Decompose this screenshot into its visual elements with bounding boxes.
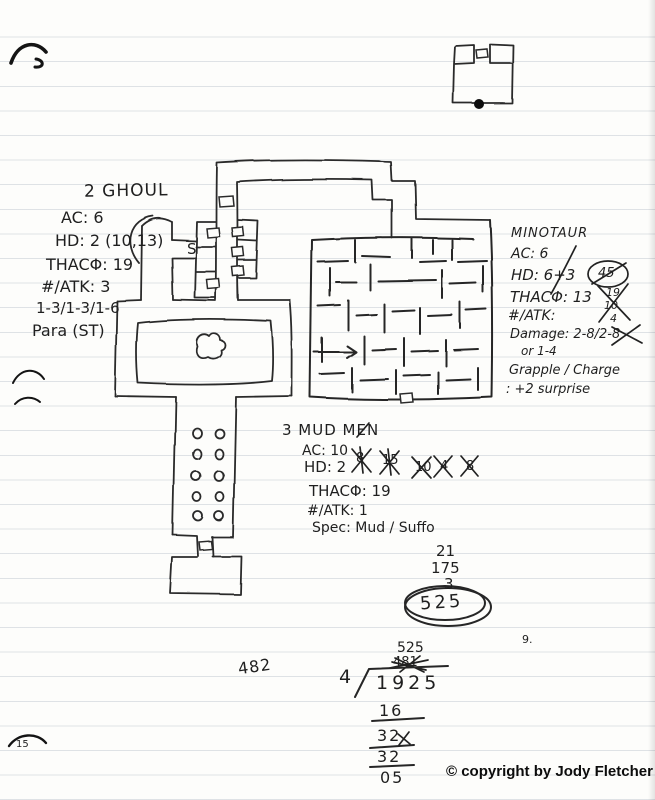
scanned-notebook-page: 2 GHOUL AC: 6 HD: 2 (10,13) THACΦ: 19 #/… bbox=[0, 0, 655, 800]
maze-walls bbox=[318, 239, 487, 394]
mudmen-hp-scratch: 4 bbox=[440, 460, 448, 473]
minotaur-damage: Damage: 2-8/2-8 bbox=[510, 328, 620, 341]
sum-addend: 3 bbox=[444, 577, 454, 592]
ghoul-attacks: #/ATK: 3 bbox=[41, 279, 110, 295]
mudmen-hd: HD: 2 bbox=[304, 460, 346, 475]
arrow-icon bbox=[314, 346, 356, 358]
division-dividend: 1925 bbox=[376, 674, 440, 693]
minotaur-hd: HD: 6+3 bbox=[511, 268, 575, 283]
ghoul-ac: AC: 6 bbox=[61, 210, 104, 226]
side-number: 482 bbox=[237, 657, 272, 678]
door-icon bbox=[476, 49, 488, 58]
minotaur-hp-scratch: 10 bbox=[604, 300, 618, 311]
pool-blob bbox=[196, 333, 225, 358]
mudmen-hp-scratch: 8 bbox=[356, 452, 364, 465]
ghoul-special: Para (ST) bbox=[32, 323, 105, 339]
dungeon-map-drawing bbox=[0, 0, 655, 800]
minotaur-hp-circled: 45 bbox=[598, 267, 615, 280]
map-dot-marker bbox=[474, 99, 484, 109]
door-icon bbox=[207, 228, 220, 238]
mudmen-title: 3 MUD MEN bbox=[282, 423, 379, 438]
door-icon bbox=[232, 247, 244, 257]
door-icon bbox=[400, 393, 413, 403]
minotaur-title: MINOTAUR bbox=[511, 227, 588, 240]
division-remainder: 05 bbox=[380, 770, 404, 786]
division-step: 32 bbox=[377, 749, 401, 765]
door-icon bbox=[232, 266, 244, 276]
scan-artifact-top-left bbox=[11, 45, 46, 67]
great-hall-room bbox=[115, 300, 292, 397]
door-icon bbox=[219, 196, 234, 207]
secret-door-marker: S bbox=[187, 242, 197, 257]
mudmen-hp-scratch: 15 bbox=[382, 454, 399, 467]
mudmen-special: Spec: Mud / Suffo bbox=[312, 521, 435, 535]
minotaur-attacks: #/ATK: bbox=[508, 309, 555, 323]
platform-outline bbox=[137, 319, 274, 384]
minotaur-thac0: THACΦ: 13 bbox=[510, 290, 592, 305]
maze-room bbox=[310, 220, 493, 403]
pillar-icons bbox=[192, 428, 225, 521]
mudmen-attacks: #/ATK: 1 bbox=[307, 504, 368, 518]
left-chamber bbox=[130, 216, 196, 300]
division-divisor: 4 bbox=[339, 668, 351, 687]
division-step: 16 bbox=[379, 703, 403, 719]
minotaur-hp-scratch: 4 bbox=[610, 313, 617, 324]
top-right-room bbox=[453, 44, 513, 109]
page-number: 15 bbox=[16, 740, 29, 750]
door-icon bbox=[207, 279, 220, 289]
division-step: 32 bbox=[377, 728, 401, 744]
cell-block bbox=[195, 164, 258, 300]
mudmen-ac: AC: 10 bbox=[302, 444, 348, 458]
mudmen-hp-scratch: 8 bbox=[466, 460, 474, 473]
ghoul-damage: 1-3/1-3/1-6 bbox=[36, 301, 120, 316]
division-scratch: 481 bbox=[393, 656, 418, 669]
sum-result: 525 bbox=[419, 593, 464, 614]
minotaur-damage-alt: or 1-4 bbox=[521, 345, 557, 357]
minotaur-ac: AC: 6 bbox=[511, 247, 548, 261]
stray-number: 9. bbox=[522, 634, 533, 645]
scan-artifact-mid-left bbox=[13, 371, 44, 404]
sum-addend: 21 bbox=[436, 544, 455, 559]
pillar-corridor bbox=[173, 397, 236, 556]
mudmen-hp-scratch: 10 bbox=[415, 461, 432, 474]
ghoul-hd: HD: 2 (10,13) bbox=[55, 233, 163, 249]
sum-addend: 175 bbox=[431, 561, 460, 576]
door-icon bbox=[232, 227, 244, 237]
division-top: 525 bbox=[397, 641, 424, 655]
minotaur-hp-scratch: 19 bbox=[606, 287, 620, 298]
minotaur-special-1: Grapple / Charge bbox=[509, 364, 620, 377]
ghoul-title: 2 GHOUL bbox=[84, 182, 169, 200]
bottom-room bbox=[170, 556, 241, 594]
door-icon bbox=[199, 541, 212, 550]
ghoul-thac0: THACΦ: 19 bbox=[46, 257, 133, 273]
mudmen-thac0: THACΦ: 19 bbox=[309, 484, 391, 499]
copyright-text: © copyright by Jody Fletcher bbox=[446, 763, 653, 780]
minotaur-special-2: : +2 surprise bbox=[506, 383, 590, 396]
